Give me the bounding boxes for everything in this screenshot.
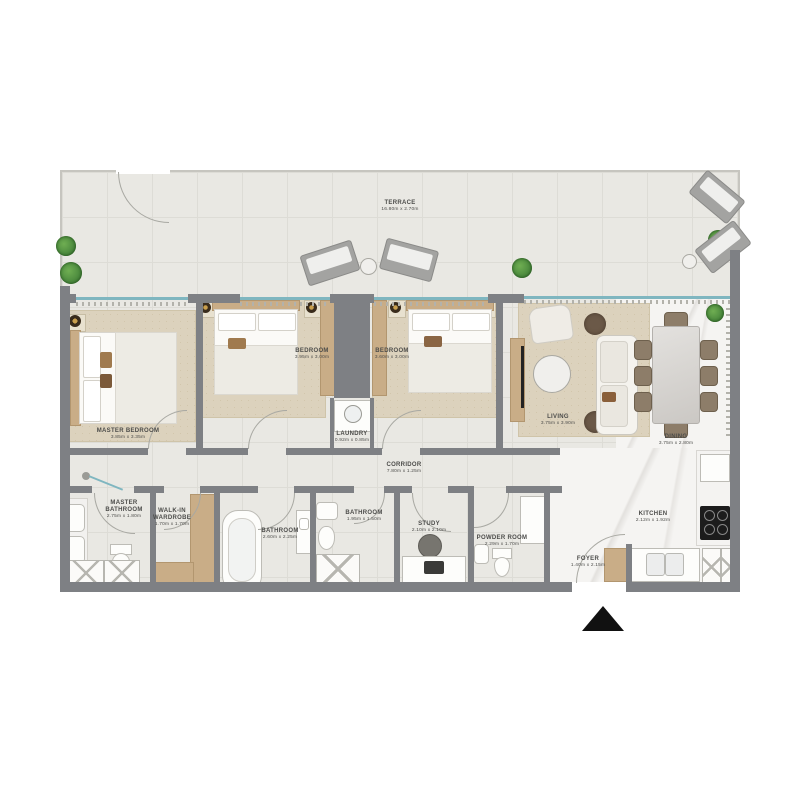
master-bed-pillow-2 <box>83 380 101 422</box>
wall-exterior-left <box>60 286 70 592</box>
entrance-triangle-marker <box>582 606 624 631</box>
shaft-hatch-3 <box>702 548 721 586</box>
shaft-block <box>334 300 370 398</box>
master-throw-pillow-2 <box>100 374 112 388</box>
dining-chair-left-3 <box>634 392 652 412</box>
label-bedroom2: BEDROOM3.60m x 3.00m <box>370 348 414 360</box>
master-bed-pillow-1 <box>83 336 101 378</box>
bedroom1-window <box>240 297 330 300</box>
living-armchair <box>528 303 575 344</box>
kitchen-sink-1 <box>646 553 665 576</box>
burner-icon-1 <box>704 510 715 521</box>
dining-chair-left-1 <box>634 340 652 360</box>
wall-mb-b1 <box>196 300 203 448</box>
living-sofa-cushion-1 <box>600 341 628 383</box>
label-corridor: CORRIDOR7.80m x 1.25m <box>369 462 439 474</box>
kitchen-sink-2 <box>665 553 684 576</box>
divider-wiw-bath1 <box>214 486 220 584</box>
burner-icon-3 <box>704 524 715 535</box>
corridor-top-wall-3 <box>286 448 382 455</box>
living-sofa-throw-pillow <box>602 392 616 402</box>
wall-stub-b2-living <box>488 294 524 303</box>
bedroom1-window-ticks <box>240 302 330 306</box>
laptop-icon <box>424 561 444 574</box>
dining-chair-right-2 <box>700 366 718 386</box>
label-terrace: TERRACE16.80m x 2.70m <box>365 200 435 212</box>
label-foyer: FOYER1.40m x 2.15m <box>553 556 623 568</box>
corridor-bottom-wall-4 <box>294 486 354 493</box>
label-laundry: LAUNDRY0.92m x 0.85m <box>330 431 374 443</box>
divider-foyer-kitchen <box>626 544 632 584</box>
kitchen-fridge <box>700 454 730 482</box>
study-chair <box>418 534 442 558</box>
master-bedroom-window <box>76 297 188 300</box>
bedroom1-pillow-1 <box>218 313 256 331</box>
wall-stub-terrace-left <box>60 294 76 303</box>
label-kitchen: KITCHEN2.12m x 1.92m <box>618 511 688 523</box>
dining-chair-right-3 <box>700 392 718 412</box>
label-study: STUDY2.10m x 2.10m <box>394 521 464 533</box>
corridor-top-wall-2 <box>186 448 248 455</box>
wall-b2-living <box>496 300 503 448</box>
bedroom2-duvet <box>408 343 492 393</box>
laundry-wall-right <box>370 398 374 452</box>
plant-terrace-center <box>512 258 532 278</box>
bedroom2-window <box>374 297 488 300</box>
label-bathroom2: BATHROOM1.95m x 1.50m <box>339 510 389 522</box>
divider-powder-foyer <box>544 486 550 584</box>
terrace-side-table-1 <box>360 258 377 275</box>
wall-exterior-right <box>730 250 740 592</box>
corridor-bottom-wall-2 <box>134 486 164 493</box>
bathtub-inner <box>228 518 256 582</box>
plant-terrace-left-2 <box>60 262 82 284</box>
bedroom1-duvet <box>214 345 298 395</box>
bedroom1-pillow-2 <box>258 313 296 331</box>
wall-exterior-bottom-right <box>626 582 740 592</box>
divider-bath1-bath2 <box>310 486 316 584</box>
burner-icon-4 <box>717 524 728 535</box>
dining-chair-left-2 <box>634 366 652 386</box>
master-bedside-lamp-icon <box>69 315 81 327</box>
label-master-bedroom: MASTER BEDROOM3.85m x 3.35m <box>93 428 163 440</box>
plant-terrace-left-1 <box>56 236 76 256</box>
burner-icon-2 <box>717 510 728 521</box>
master-bed-duvet <box>115 332 177 424</box>
washing-machine-drum-icon <box>344 405 362 423</box>
living-glass-front <box>524 296 730 299</box>
corridor-bottom-wall-7 <box>506 486 562 493</box>
master-window-ticks <box>76 302 188 306</box>
corridor-top-wall-4 <box>420 448 560 455</box>
bedroom2-throw-pillow <box>424 336 442 347</box>
label-living: LIVING3.75m x 3.90m <box>523 414 593 426</box>
living-window-ticks <box>524 300 730 304</box>
master-throw-pillow-1 <box>100 352 112 368</box>
label-bedroom1: BEDROOM3.95m x 3.00m <box>290 348 334 360</box>
corridor-bottom-wall-3 <box>200 486 258 493</box>
bathroom2-toilet <box>318 526 335 550</box>
bedroom2-pillow-2 <box>452 313 490 331</box>
divider-bath2-study <box>394 486 400 584</box>
label-walk-in-wardrobe: WALK-IN WARDROBE1.70m x 1.70m <box>145 508 199 527</box>
bedroom2-pillow-1 <box>412 313 450 331</box>
plant-dining-corner <box>706 304 724 322</box>
living-coffee-table <box>533 355 571 393</box>
floor-plan-canvas: TERRACE16.80m x 2.70m MASTER BEDROOM3.85… <box>0 0 800 800</box>
label-powder-room: POWDER ROOM2.29m x 1.70m <box>473 535 531 547</box>
wall-exterior-bottom-left <box>60 582 572 592</box>
living-pouf-top <box>584 313 606 335</box>
corridor-top-wall-1 <box>62 448 148 455</box>
laundry-wall-left <box>330 398 334 452</box>
label-bathroom1: BATHROOM2.60m x 2.25m <box>255 528 305 540</box>
bedroom1-throw-pillow <box>228 338 246 349</box>
dining-table <box>652 326 700 424</box>
label-dining: DINING3.75m x 2.80m <box>641 434 711 446</box>
corridor-bottom-wall-1 <box>62 486 92 493</box>
label-master-bathroom: MASTER BATHROOM2.75m x 1.80m <box>98 500 150 519</box>
bathroom2-sink <box>316 502 338 520</box>
terrace-side-table-2 <box>682 254 697 269</box>
tv-icon <box>521 346 524 408</box>
divider-mbath-wiw <box>150 486 156 584</box>
bathroom2-shower-tray <box>316 554 360 584</box>
bedroom2-window-ticks <box>374 302 488 306</box>
dining-chair-right-1 <box>700 340 718 360</box>
